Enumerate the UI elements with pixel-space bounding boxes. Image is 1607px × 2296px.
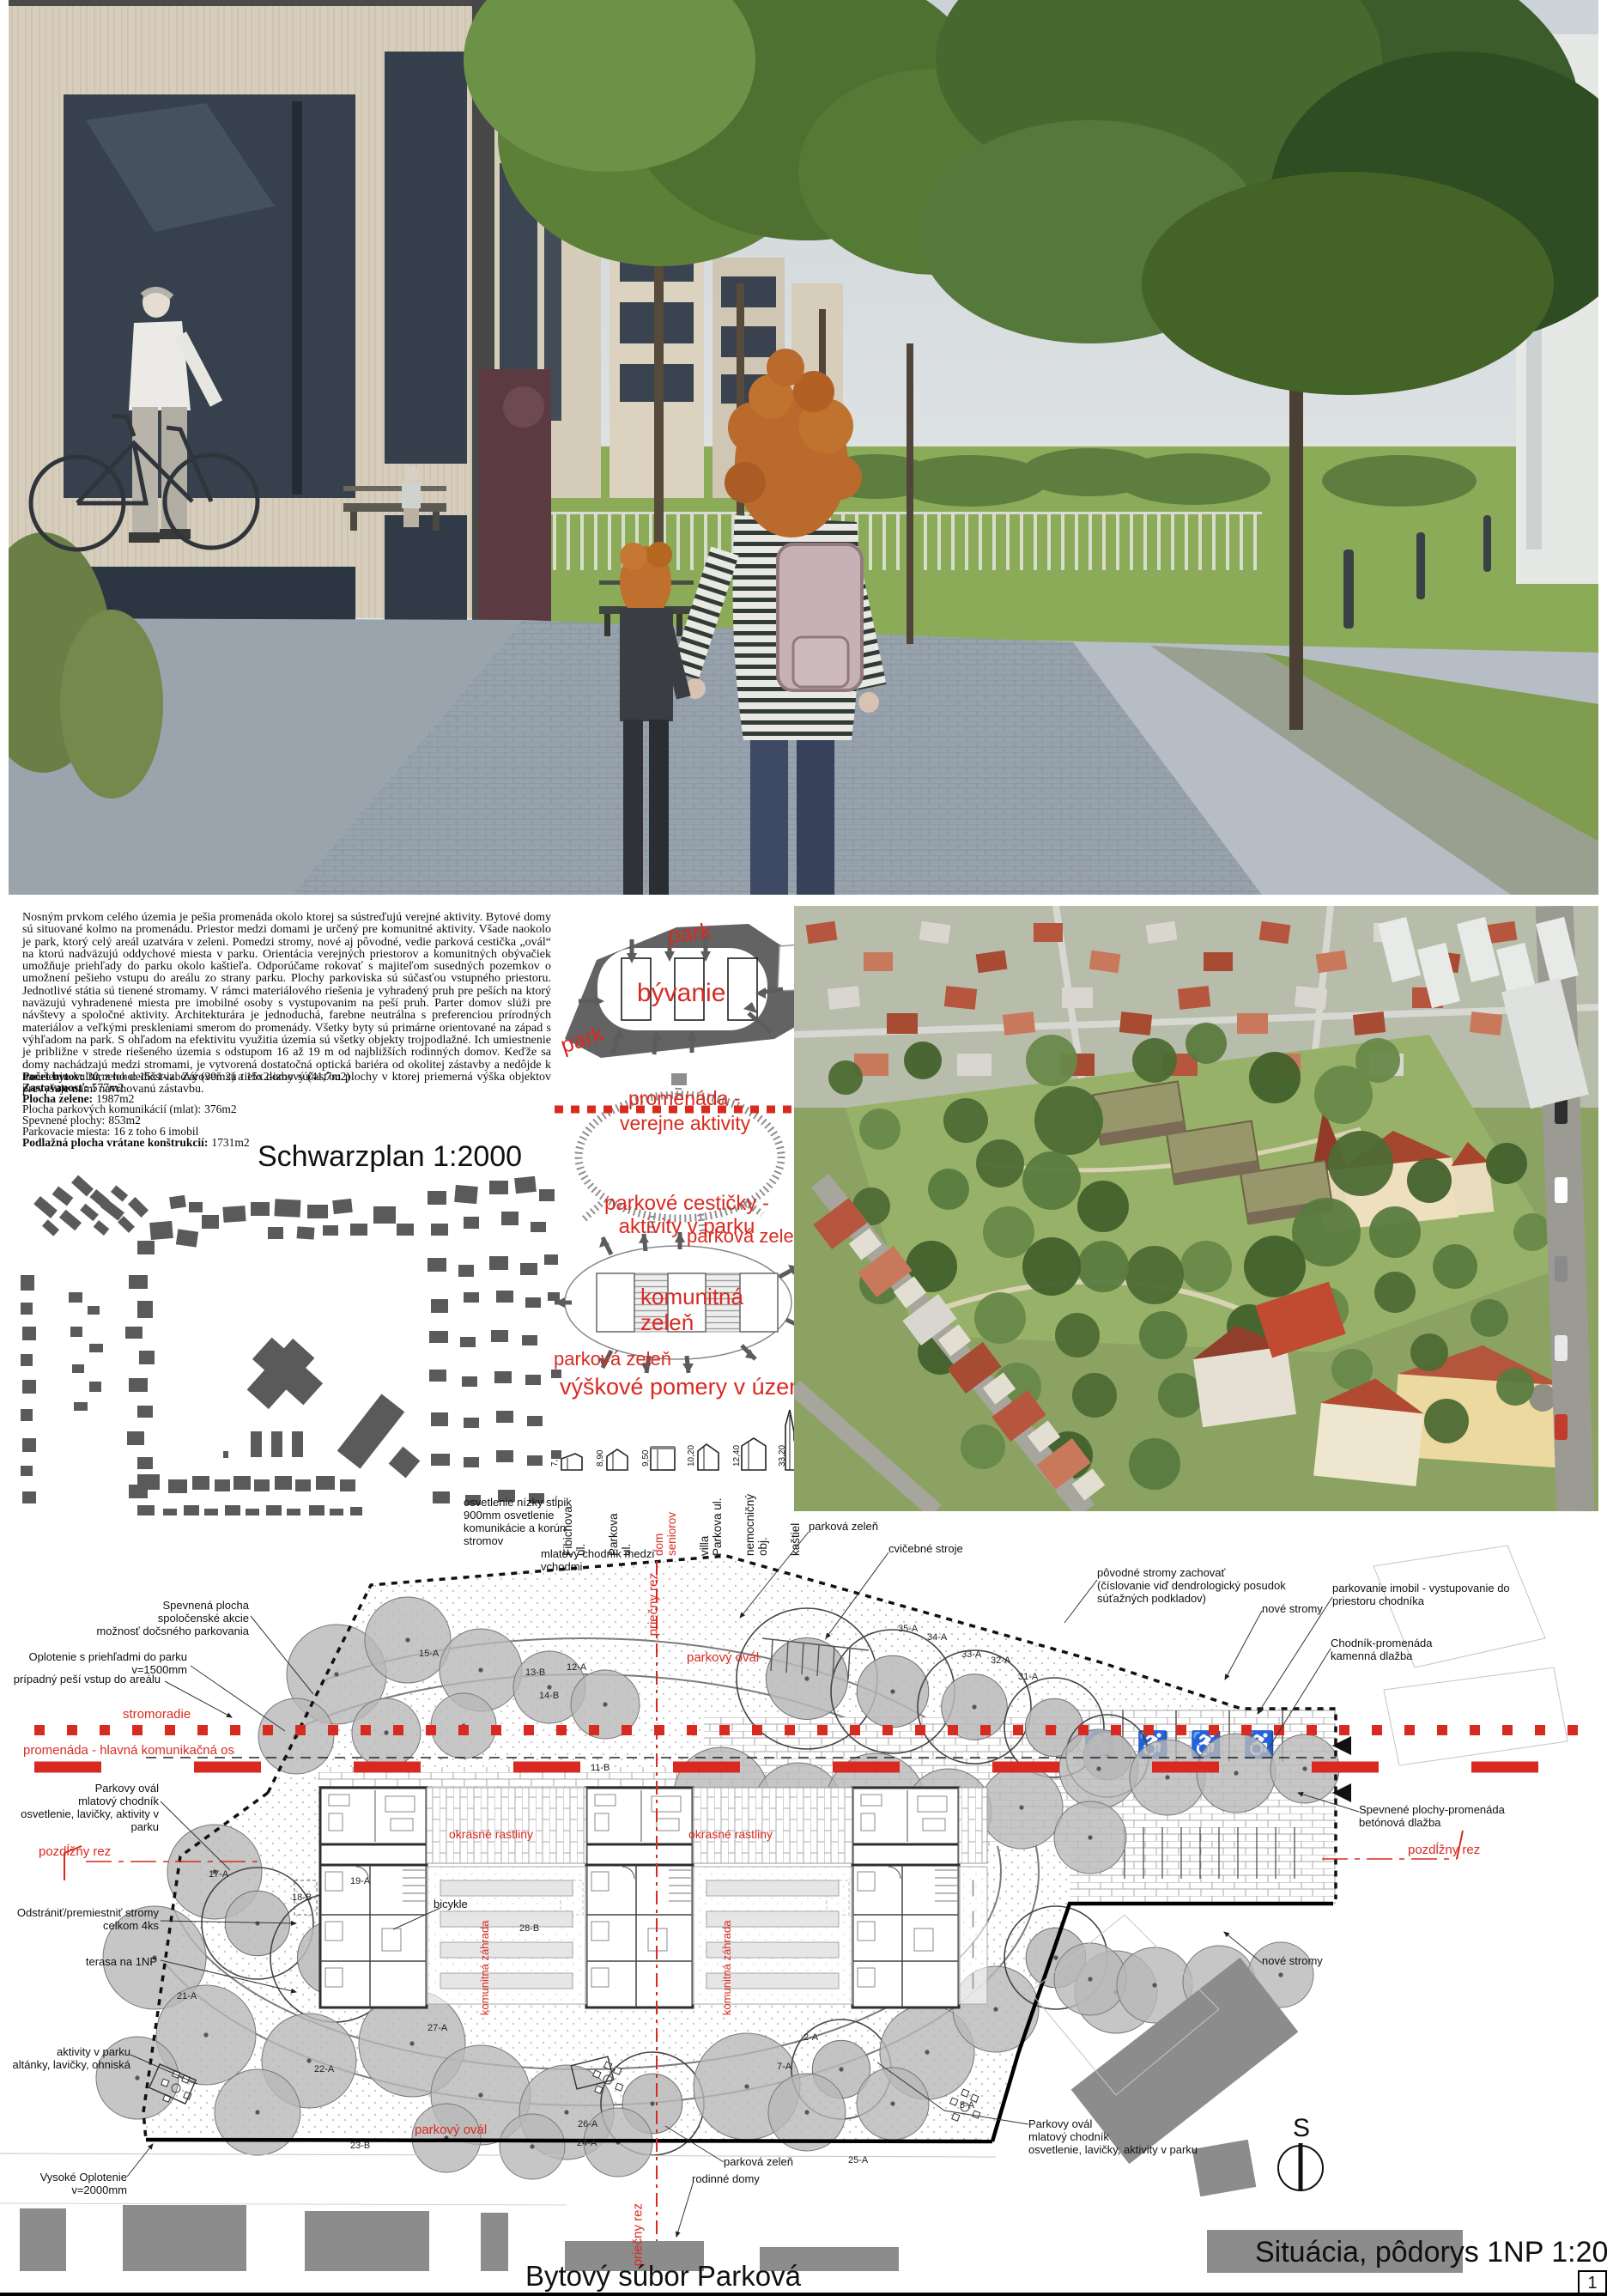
label-parkovy-oval-bottom: parkový ovál (415, 2123, 487, 2137)
north-compass: S (1278, 2114, 1323, 2191)
annotation-pesi-vstup: prípadný peší vstup do areálu (14, 1673, 161, 1686)
label-priecny-top: priečny rez (646, 1573, 661, 1636)
annotation-cvicebne-stroje: cvičebné stroje (888, 1542, 963, 1555)
tree-tag: 5-A (960, 2100, 974, 2111)
competition-board: Nosným prvkom celého územia je pešia pro… (0, 0, 1607, 2296)
annotation-terasa: terasa na 1NP (86, 1955, 157, 1968)
label-okrasne-1: okrasné rastliny (449, 1827, 533, 1841)
tree-tag: 19-A (350, 1876, 370, 1886)
tree-tag: 7-A (777, 2062, 791, 2072)
hero-rendering (9, 0, 1598, 895)
annotation-povodne-stromy: pôvodné stromy zachovať (číslovanie viď … (1097, 1566, 1286, 1605)
heights-title: výškové pomery v území (560, 1374, 815, 1400)
seated-person (402, 466, 421, 527)
label-okrasne-2: okrasné rastliny (688, 1827, 773, 1841)
annotation-odstranit-stromy: Odstrániť/premiestniť stromy celkom 4ks (17, 1906, 159, 1932)
tree-tag: 33-A (961, 1649, 981, 1660)
komunitna-label-2: zeleň (640, 1309, 694, 1335)
tree-tag: 28-B (519, 1923, 539, 1934)
annotation-bicykle: bicykle (434, 1898, 468, 1910)
tree-tag: 22-A (314, 2064, 334, 2074)
tree-tag: 21-A (177, 1991, 197, 2001)
tree-tag: 26-A (578, 2119, 597, 2129)
promenade-label-1: promenáda - (628, 1087, 740, 1109)
byvanie-label: bývanie (637, 979, 725, 1007)
annotation-parkova-zelen-bottom: parková zeleň (724, 2155, 793, 2168)
annotation-nove-stromy-1: nové stromy (1262, 1602, 1323, 1615)
siteplan-title: Situácia, pôdorys 1NP 1:200 (1255, 2236, 1607, 2269)
tree-tag: 13-B (525, 1667, 545, 1678)
building-footprints (21, 1175, 561, 1515)
tree-tag: 24-A (577, 2138, 597, 2148)
tree-tag: 2-A (803, 2032, 818, 2043)
tree-tag: 25-A (848, 2155, 868, 2165)
annotation-parkovanie-imobil: parkovanie imobil - vystupovanie do prie… (1332, 1582, 1510, 1607)
parkova-zelen-bottom: parková zeleň (554, 1348, 671, 1370)
annotation-aktivity: aktivity v parku altánky, lavičky, ohnis… (12, 2045, 130, 2071)
annotation-spevnene-plochy: Spevnené plochy-promenáda betónová dlažb… (1359, 1803, 1505, 1829)
label-pozdlzny-left: pozdĺžny rez (39, 1844, 111, 1859)
annotation-spevnena-plocha: Spevnená plocha spoločenské akcie možnos… (96, 1599, 249, 1637)
label-promenada: promenáda - hlavná komunikačná os (23, 1743, 234, 1758)
tree-tag: 32-A (991, 1655, 1010, 1666)
tree-tag: 17-A (209, 1869, 228, 1880)
project-description: Nosným prvkom celého územia je pešia pro… (22, 912, 551, 1096)
komunitna-label-1: komunitná (640, 1284, 743, 1309)
label-komunitna-2: komunitná záhrada (720, 1921, 733, 2016)
annotation-parkovy-oval-right: Parkovy ovál mlatový chodník osvetlenie,… (1028, 2117, 1198, 2156)
tree-tag: 34-A (927, 1632, 947, 1643)
sheet-border (0, 2293, 1607, 2296)
tree-tag: 23-B (350, 2141, 370, 2151)
label-parkovy-oval-top: parkový ovál (687, 1650, 759, 1665)
tree-tag: 12-A (567, 1662, 586, 1673)
annotation-osvetlenie: osvetlenie nízky stĺpik 900mm osvetlenie… (464, 1496, 572, 1547)
label-pozdlzny-right: pozdĺžny rez (1408, 1843, 1480, 1857)
tree-tag: 31-A (1018, 1672, 1038, 1682)
label-stromoradie: stromoradie (123, 1707, 191, 1722)
annotation-mlatovy-chodnik: mlatový chodník medzi vchodmi (541, 1547, 654, 1573)
diagram-housing: park park bývanie (549, 910, 824, 1092)
annotation-parkovy-oval-left: Parkovy ovál mlatový chodník osvetlenie,… (0, 1782, 159, 1833)
label-komunitna-1: komunitná záhrada (478, 1921, 491, 2016)
tree-tag: 27-A (428, 2023, 447, 2033)
tree-tag: 35-A (898, 1624, 918, 1634)
project-title: Bytový súbor Parková (525, 2260, 801, 2293)
annotation-vysoke-oplotenie: Vysoké Oplotenie v=2000mm (40, 2171, 127, 2196)
site-plan: ♿ ♿ ♿ ♿ (0, 1511, 1607, 2296)
tree-tag: 15-A (419, 1649, 439, 1659)
label-priecny-bottom: priečny rez (631, 2203, 646, 2266)
hero-rendering-scene (9, 0, 1598, 895)
compass-letter: S (1293, 2114, 1310, 2142)
annotation-nove-stromy-2: nové stromy (1262, 1954, 1323, 1967)
apartment-buildings (294, 1788, 959, 2007)
tree-tag: 14-B (539, 1691, 559, 1701)
annotation-chodnik: Chodník-promenáda kamenná dlažba (1331, 1637, 1433, 1662)
annotation-rodinne-domy: rodinné domy (692, 2172, 760, 2185)
project-statistics: Počet bytov:30, z toho: 15x1-izbový (30m… (22, 1072, 537, 1149)
tree-tag: 11-B (591, 1763, 609, 1773)
schwarzplan-figure (9, 1155, 565, 1515)
promenade-label-2: verejne aktivity (620, 1112, 751, 1134)
tree-tag: 18-B (292, 1892, 312, 1903)
parkova-zelen-top: parková zeleň (687, 1225, 804, 1247)
aerial-photo (794, 906, 1598, 1511)
annotation-parkova-zelen-top: parková zeleň (809, 1520, 878, 1533)
park-label-top: park (666, 918, 713, 949)
